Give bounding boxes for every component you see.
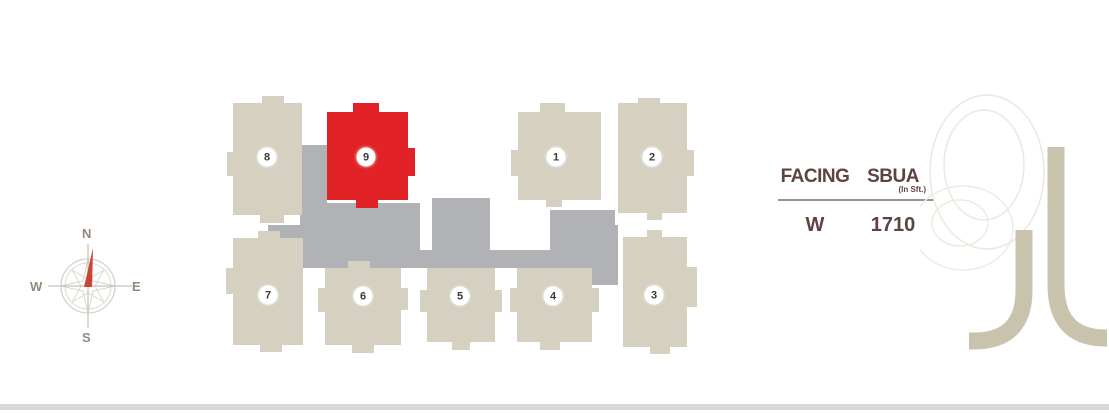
building-number-badge: 3: [645, 286, 664, 305]
building-edge-tab: [420, 290, 427, 312]
building-edge-tab: [356, 200, 378, 208]
building-number-badge: 8: [258, 148, 277, 167]
building-4[interactable]: 4: [517, 268, 592, 342]
facing-header: FACING: [778, 168, 852, 194]
building-edge-tab: [540, 103, 565, 112]
podium-structure: [590, 225, 618, 285]
building-3[interactable]: 3: [623, 237, 687, 347]
table-divider-line: [778, 199, 934, 201]
building-edge-tab: [353, 103, 379, 112]
table-header-row: FACING SBUA (In Sft.): [778, 168, 934, 194]
building-edge-tab: [510, 288, 517, 312]
building-edge-tab: [650, 347, 670, 354]
building-edge-tab: [540, 342, 560, 350]
facing-value: W: [778, 214, 852, 237]
building-number-badge: 9: [357, 148, 376, 167]
building-edge-tab: [260, 215, 284, 223]
building-6[interactable]: 6: [325, 268, 401, 345]
building-number-badge: 1: [547, 148, 566, 167]
building-edge-tab: [348, 261, 370, 268]
building-edge-tab: [408, 148, 415, 176]
building-edge-tab: [452, 342, 470, 350]
building-edge-tab: [401, 288, 408, 310]
building-edge-tab: [258, 231, 280, 238]
building-edge-tab: [227, 152, 233, 176]
building-1[interactable]: 1: [518, 112, 601, 200]
building-edge-tab: [687, 267, 697, 307]
building-7[interactable]: 7: [233, 238, 303, 345]
building-edge-tab: [592, 288, 599, 312]
building-edge-tab: [546, 200, 562, 207]
building-edge-tab: [687, 150, 694, 176]
building-number-badge: 4: [544, 287, 563, 306]
building-edge-tab: [495, 290, 502, 312]
building-8[interactable]: 8: [233, 103, 302, 215]
building-edge-tab: [318, 288, 325, 312]
building-edge-tab: [511, 150, 518, 176]
facing-sbua-table: FACING SBUA (In Sft.) W 1710: [778, 168, 934, 237]
building-2[interactable]: 2: [618, 103, 687, 213]
building-edge-tab: [638, 98, 660, 103]
nine-outline-outer: [930, 95, 1044, 249]
nine-outline-lower-inner: [932, 200, 988, 246]
site-plan-screenshot: N E S W 891276543 FACING SBUA (In Sft.) …: [0, 0, 1109, 413]
building-5[interactable]: 5: [427, 268, 495, 342]
nine-outline-inner: [944, 110, 1024, 220]
logo-right-curve-stroke: [1056, 147, 1107, 338]
watermark-nine-logo: [920, 85, 1109, 360]
building-edge-tab: [262, 96, 284, 103]
building-number-badge: 2: [643, 148, 662, 167]
building-number-badge: 6: [354, 287, 373, 306]
logo-left-curve-stroke: [969, 230, 1024, 341]
building-number-badge: 7: [259, 286, 278, 305]
building-edge-tab: [647, 230, 662, 237]
building-edge-tab: [352, 345, 374, 353]
building-number-badge: 5: [451, 287, 470, 306]
building-edge-tab: [226, 268, 233, 294]
bottom-divider-bar: [0, 404, 1109, 410]
building-edge-tab: [647, 213, 662, 220]
table-value-row: W 1710: [778, 214, 934, 237]
building-9-selected[interactable]: 9: [327, 112, 408, 200]
building-edge-tab: [260, 345, 282, 352]
